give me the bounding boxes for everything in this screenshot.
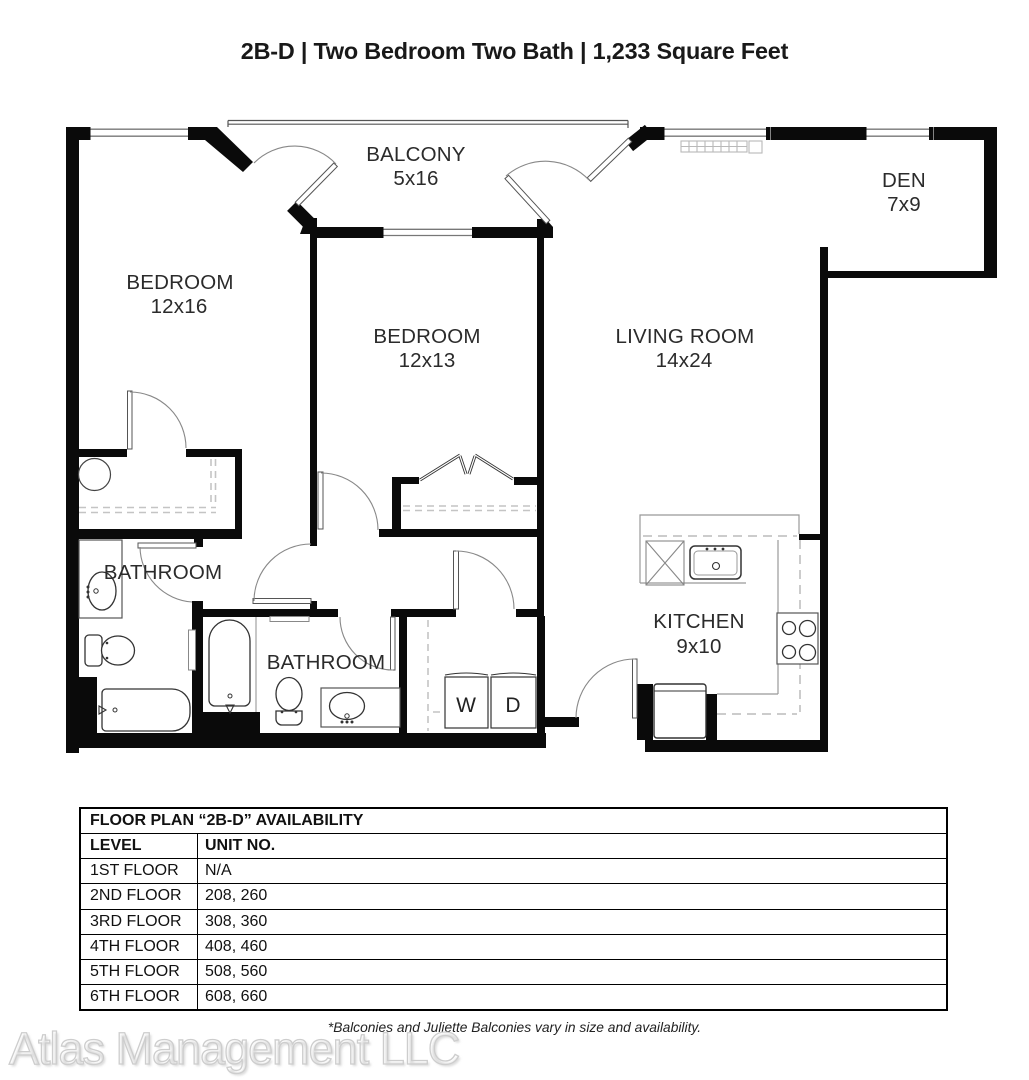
- svg-text:BEDROOM: BEDROOM: [126, 271, 233, 294]
- svg-text:12x16: 12x16: [151, 295, 208, 318]
- svg-text:KITCHEN: KITCHEN: [653, 610, 744, 633]
- svg-text:14x24: 14x24: [656, 349, 713, 372]
- svg-text:9x10: 9x10: [676, 635, 721, 658]
- svg-text:BEDROOM: BEDROOM: [373, 325, 480, 348]
- svg-text:BALCONY: BALCONY: [366, 143, 466, 166]
- svg-text:7x9: 7x9: [887, 193, 921, 216]
- svg-text:BATHROOM: BATHROOM: [267, 651, 386, 674]
- svg-text:D: D: [505, 694, 520, 717]
- svg-text:12x13: 12x13: [399, 349, 456, 372]
- svg-text:5x16: 5x16: [393, 167, 438, 190]
- svg-text:BATHROOM: BATHROOM: [104, 561, 223, 584]
- svg-text:LIVING ROOM: LIVING ROOM: [616, 325, 755, 348]
- svg-text:W: W: [456, 694, 476, 717]
- svg-text:DEN: DEN: [882, 169, 926, 192]
